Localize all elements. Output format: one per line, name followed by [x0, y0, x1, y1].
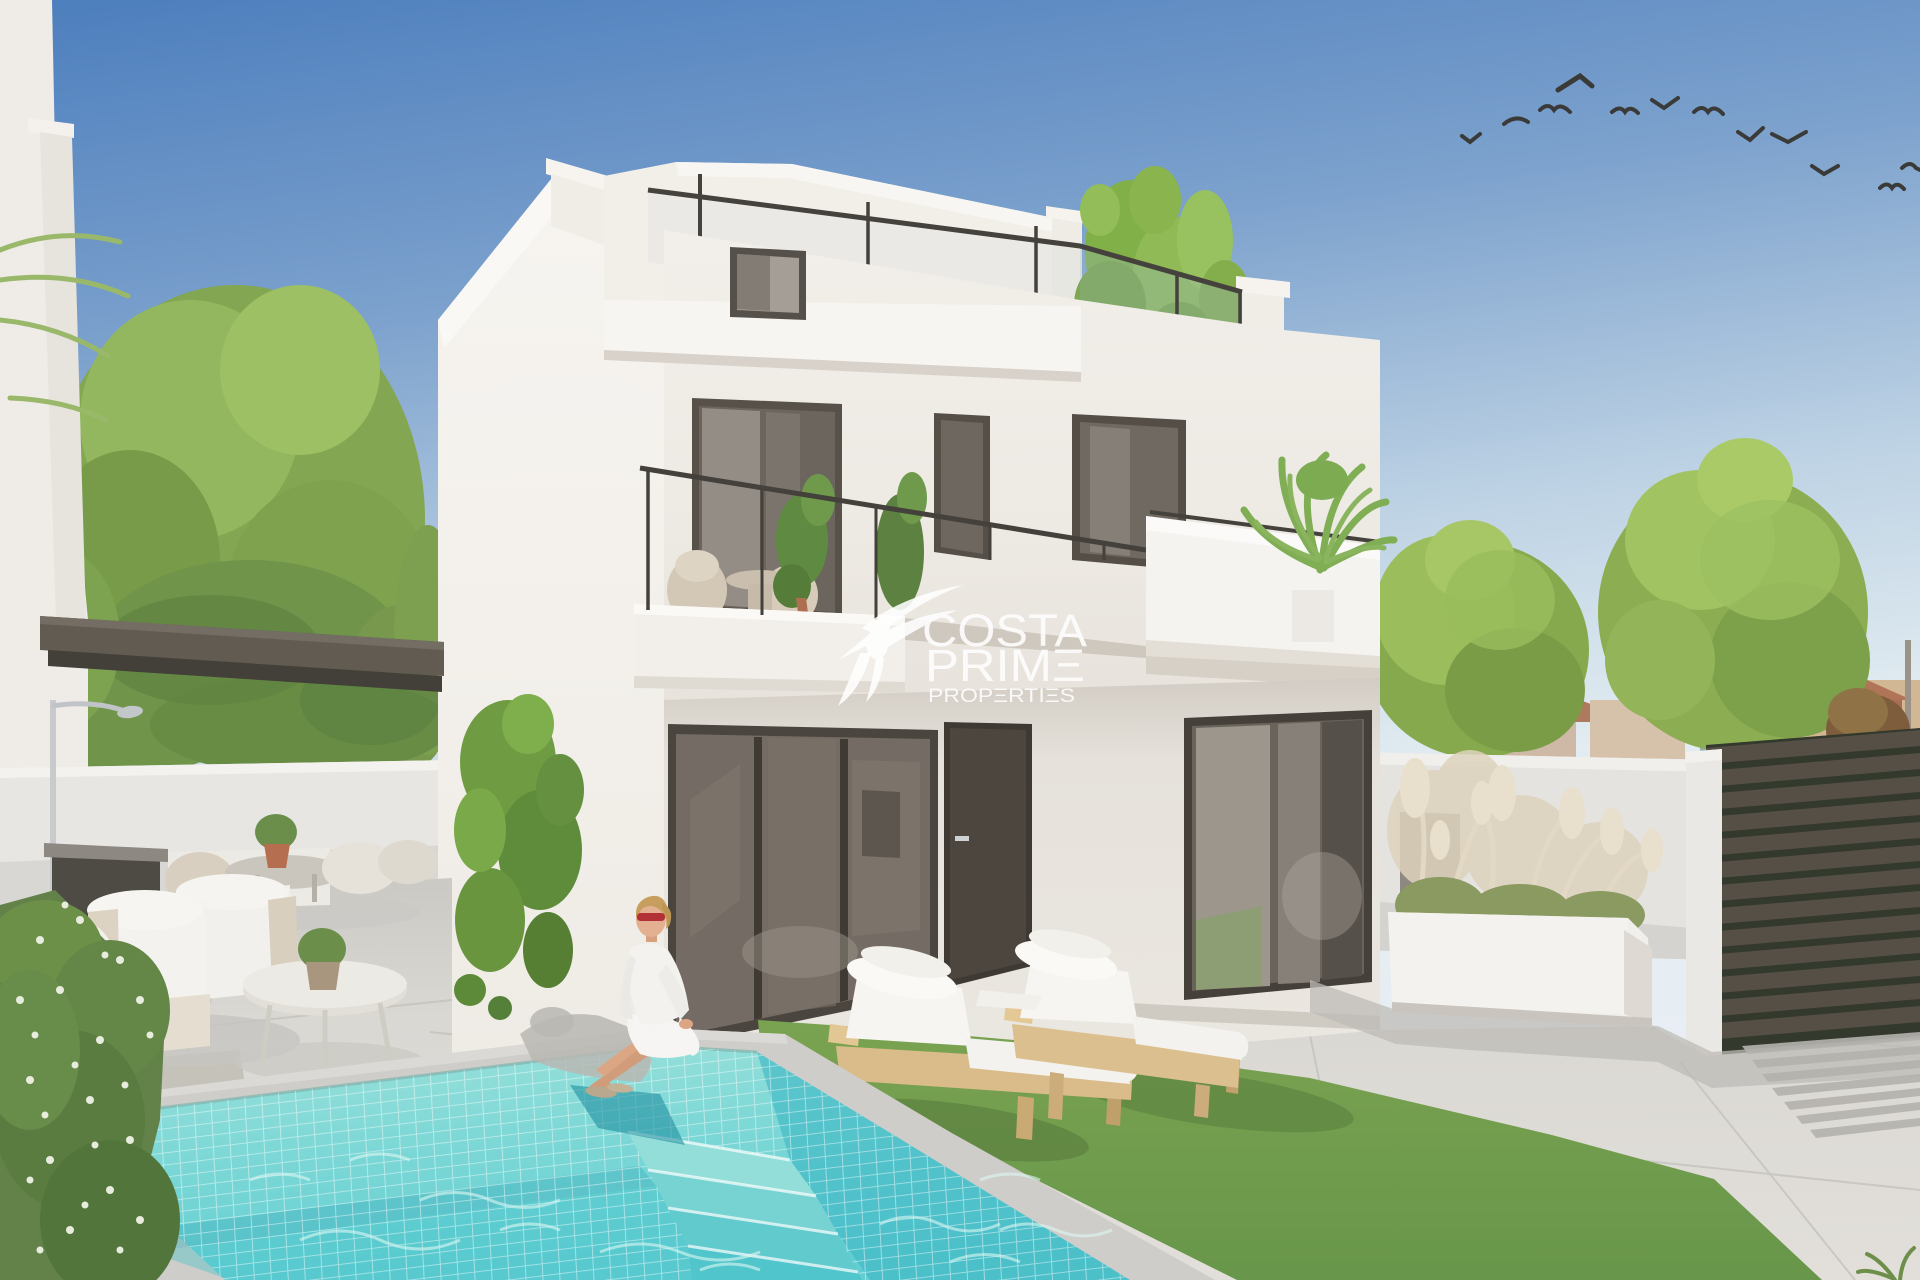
- svg-text:PROPΞRTIΞS: PROPΞRTIΞS: [928, 686, 1075, 707]
- svg-text:PRIMΞ: PRIMΞ: [925, 640, 1085, 691]
